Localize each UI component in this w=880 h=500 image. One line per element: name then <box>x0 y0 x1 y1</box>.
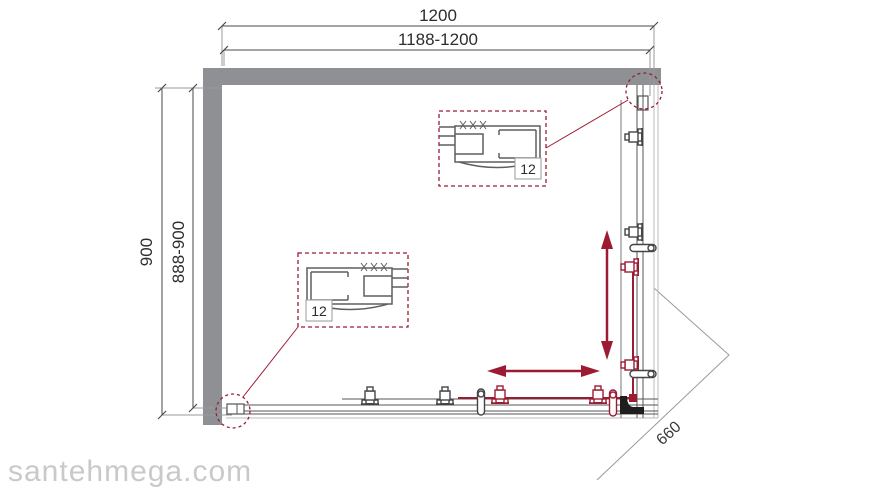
rail-end-cap <box>227 404 244 414</box>
roller-bracket-door <box>621 258 638 276</box>
dim-left-outer: 900 <box>137 84 166 419</box>
dim-top-range-label: 1188-1200 <box>398 30 478 49</box>
sliding-door-right <box>629 262 637 402</box>
roller-pill <box>630 245 656 252</box>
roller-bracket <box>625 223 642 241</box>
roller-bracket-door <box>491 386 509 403</box>
roller-bracket-door <box>589 386 607 403</box>
dim-left-outer-label: 900 <box>137 238 156 266</box>
door-corner-junction <box>629 394 637 402</box>
roller-bracket <box>625 128 642 146</box>
dim-left-range-label: 888-900 <box>169 221 188 283</box>
dim-top-outer: 1200 <box>218 6 658 30</box>
detail-box-bottom: 12 <box>298 253 408 327</box>
roller-bracket <box>361 387 379 404</box>
dim-top-outer-label: 1200 <box>419 6 457 25</box>
dim-diagonal: 660 <box>597 288 729 480</box>
left-wall <box>203 68 222 425</box>
roller-pill-door <box>610 390 617 416</box>
detail-label-top: 12 <box>520 161 536 177</box>
detail-leader-bottom <box>243 327 298 397</box>
watermark: santehmega.com <box>8 455 252 489</box>
dim-diagonal-label: 660 <box>653 418 684 449</box>
slide-arrow-vertical <box>601 230 613 360</box>
roller-bracket <box>436 387 454 404</box>
technical-drawing-canvas: 1200 1188-1200 900 888-900 660 <box>0 0 880 500</box>
dim-left-range: 888-900 <box>169 84 197 412</box>
detail-box-top: 12 <box>439 111 546 186</box>
detail-leader-top <box>546 100 628 148</box>
top-wall <box>203 68 661 85</box>
detail-label-bottom: 12 <box>311 303 327 319</box>
dim-top-range: 1188-1200 <box>220 30 654 54</box>
roller-pill <box>630 371 656 378</box>
shower-enclosure-plan: 1200 1188-1200 900 888-900 660 <box>0 0 880 500</box>
slide-arrow-horizontal <box>487 365 600 377</box>
roller-pill <box>478 389 485 415</box>
